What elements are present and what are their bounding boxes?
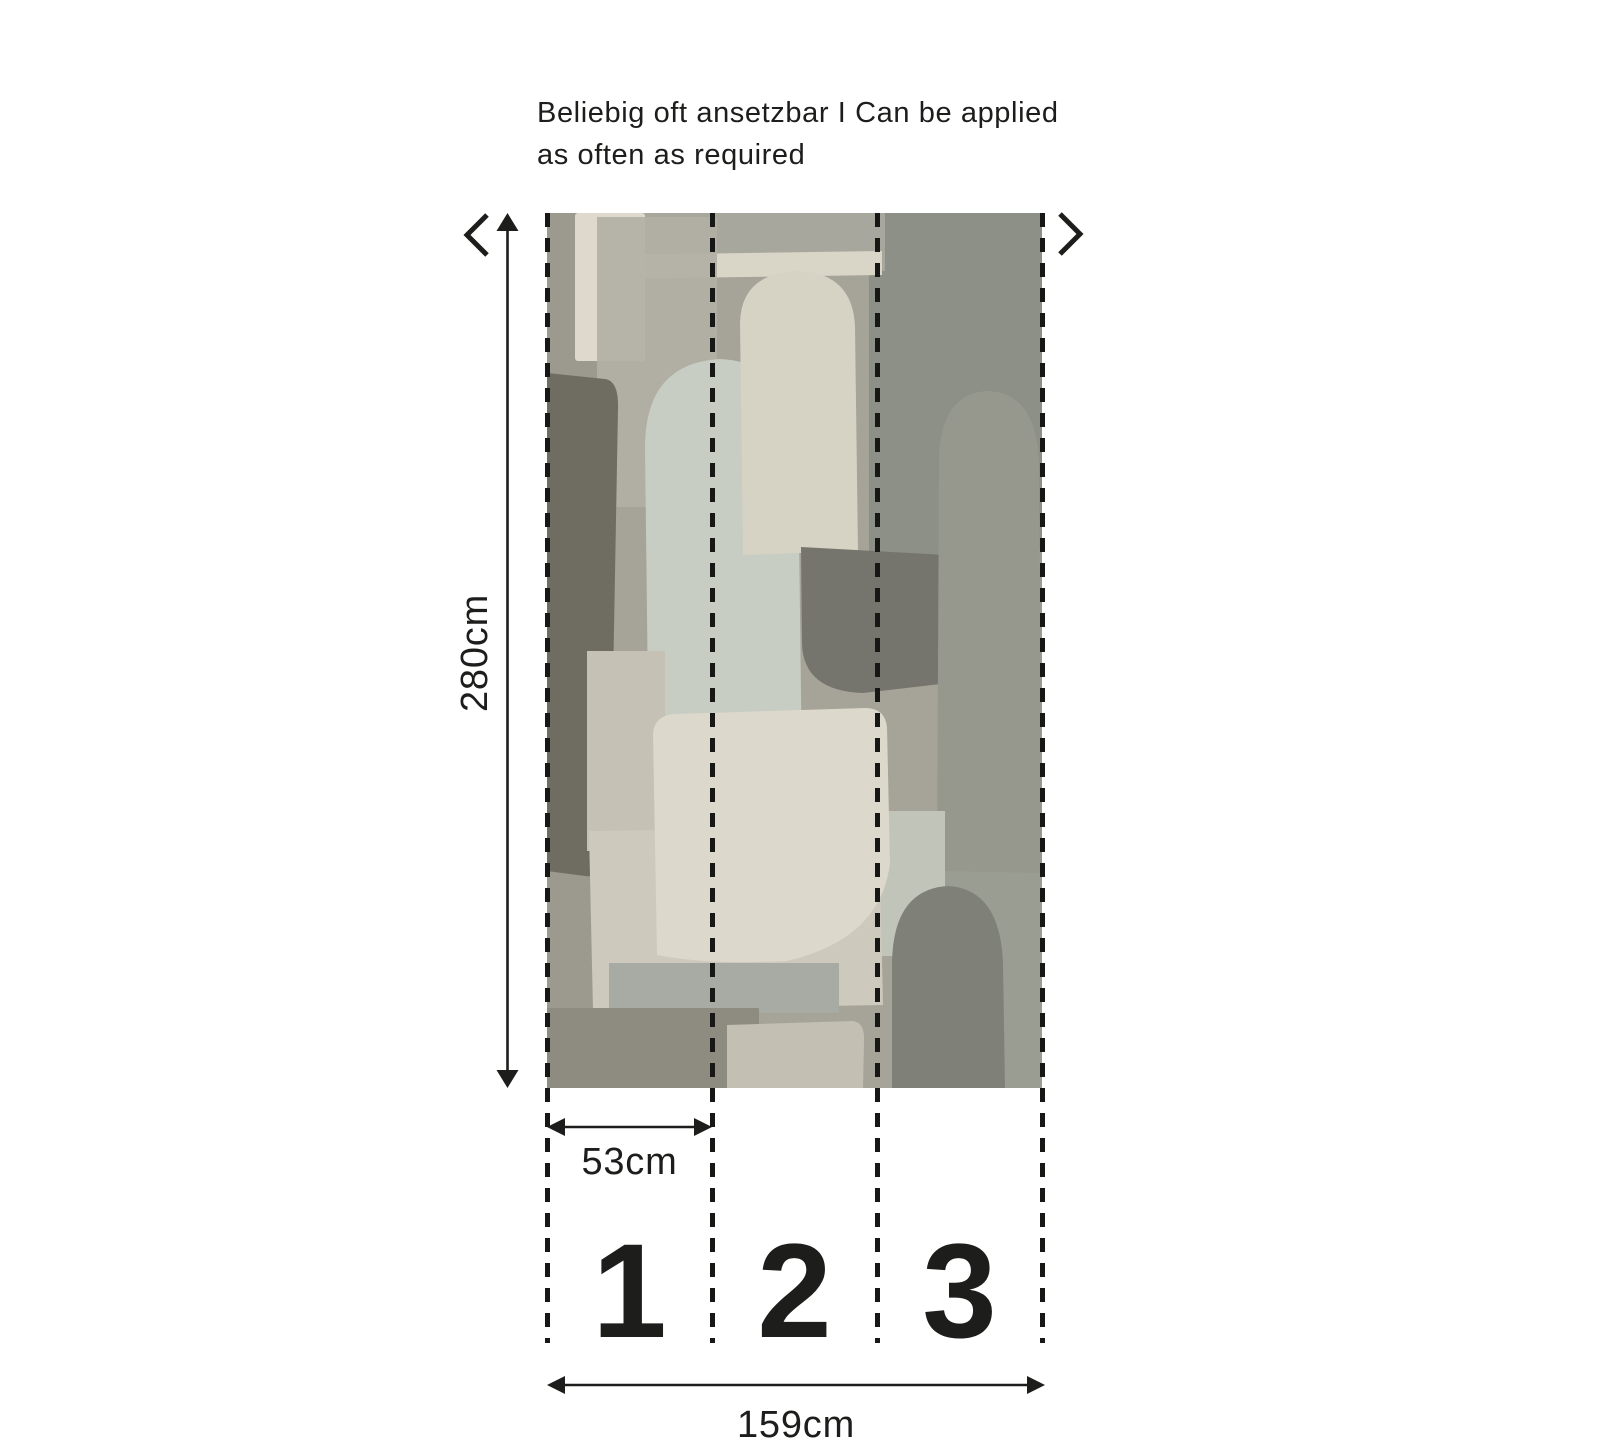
strip-divider-line-3 (875, 213, 880, 1343)
repeat-note-line-2: as often as required (537, 134, 1059, 176)
strip-number-row: 1 2 3 (547, 1222, 1042, 1362)
total-width-dimension-label: 159cm (547, 1404, 1045, 1440)
chevron-left-icon (462, 212, 494, 258)
strip-number-1: 1 (547, 1222, 712, 1362)
total-width-dimension-arrow (547, 1373, 1045, 1397)
strip-width-dimension-arrow (547, 1115, 712, 1139)
strip-number-3: 3 (877, 1222, 1042, 1362)
product-dimension-diagram: Beliebig oft ansetzbar I Can be applied … (0, 0, 1600, 1440)
strip-divider-line-4 (1040, 213, 1045, 1343)
strip-number-2: 2 (712, 1222, 877, 1362)
height-dimension-label: 280cm (454, 593, 494, 713)
strip-width-dimension-label: 53cm (547, 1141, 712, 1184)
repeat-note-line-1: Beliebig oft ansetzbar I Can be applied (537, 92, 1059, 134)
height-dimension-arrow (494, 213, 522, 1088)
wallpaper-pattern-image (547, 213, 1042, 1088)
chevron-right-icon (1053, 211, 1085, 257)
repeat-note: Beliebig oft ansetzbar I Can be applied … (537, 92, 1059, 176)
wallpaper-shapes (547, 213, 1042, 1088)
